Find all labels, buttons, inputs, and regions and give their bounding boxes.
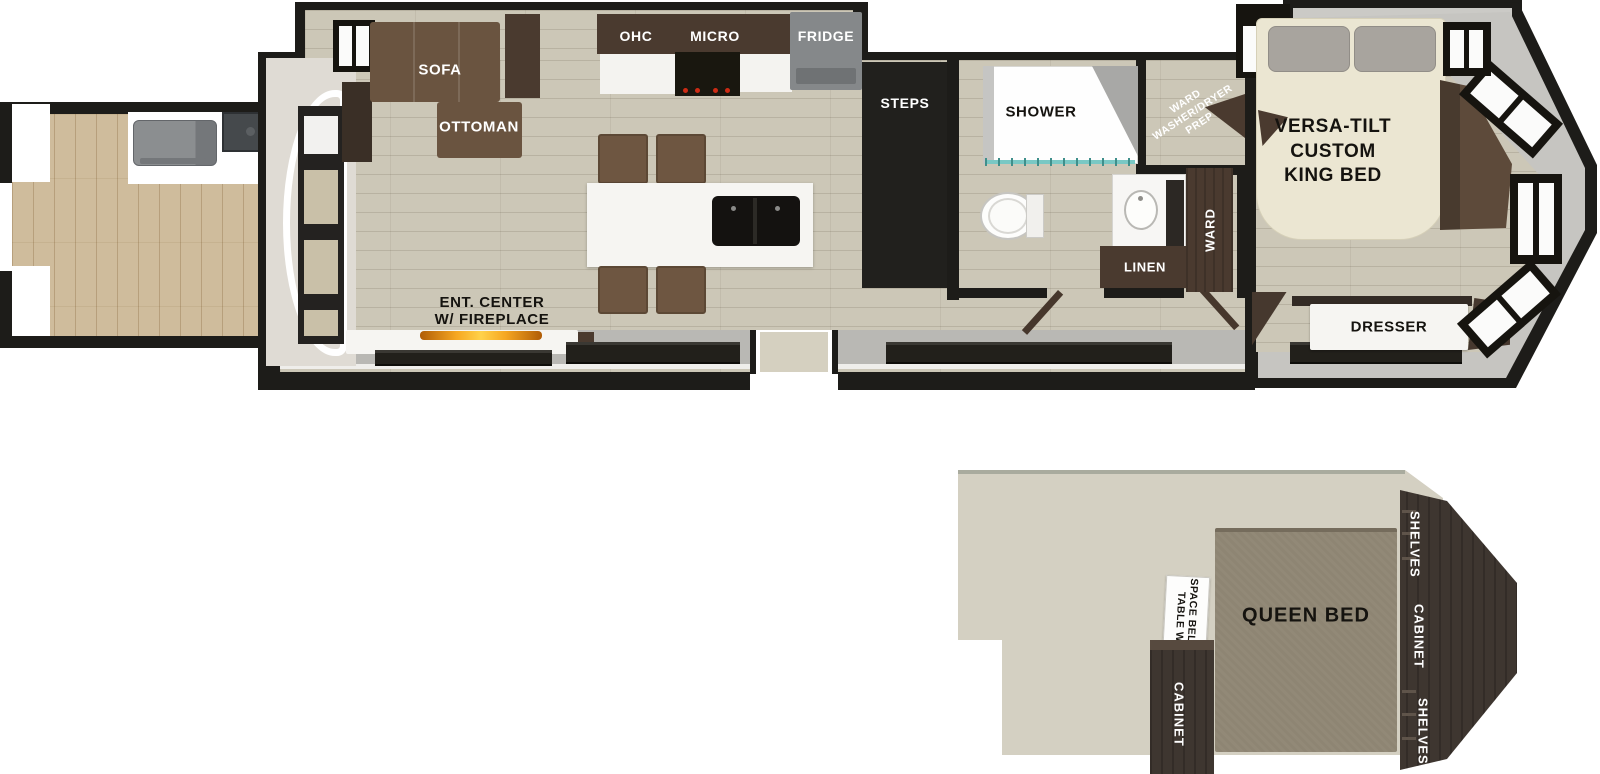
pillow [1354, 26, 1436, 72]
vanity-mirror [1166, 180, 1184, 248]
sofa-slide-window [333, 20, 375, 72]
dining-chair [598, 266, 648, 314]
fireplace-flame-icon [420, 331, 542, 340]
wall [959, 288, 1047, 298]
linen-label: LINEN [1124, 260, 1166, 275]
pantry-cabinet [505, 14, 540, 98]
kitchen-counter-right [740, 54, 792, 92]
sofa-end-table [342, 82, 372, 162]
floorplan-canvas: SOFA OTTOMAN OHC MICRO FRIDGE STEPS SHOW… [0, 0, 1600, 774]
patio-door [298, 106, 344, 344]
fridge-lip [796, 68, 856, 84]
cap-window-middle [1510, 174, 1562, 264]
wall [1104, 288, 1176, 298]
dining-chair [656, 266, 706, 314]
king-bed-label: VERSA-TILT CUSTOM KING BED [1275, 115, 1391, 189]
deck-rail-gap-bottom [12, 266, 50, 336]
micro-label: MICRO [690, 28, 740, 44]
window [566, 342, 740, 364]
shower-glass-ticks [985, 158, 1135, 166]
dining-chair [656, 134, 706, 184]
outdoor-sink-drain [246, 127, 255, 136]
sofa-label: SOFA [418, 62, 461, 79]
shower-wall-left [983, 66, 994, 164]
ottoman-label: OTTOMAN [439, 119, 519, 136]
steps-label: STEPS [881, 95, 930, 111]
queen-bed-label: QUEEN BED [1242, 605, 1370, 628]
toilet-tank [1026, 194, 1044, 238]
entry-door-floor [760, 332, 828, 372]
queen-bed [1215, 528, 1397, 752]
range [675, 52, 740, 96]
entry-door-jamb [832, 330, 838, 374]
kitchen-counter-left [600, 54, 675, 94]
deck-rail-gap-left [0, 183, 12, 271]
entry-door-jamb [750, 330, 756, 374]
bed-slideout-window [1443, 22, 1491, 76]
island-sink [712, 196, 800, 246]
loft-cabinet-right-label: CABINET [1408, 592, 1430, 680]
loft-shelves-top-label: SHELVES [1404, 500, 1426, 588]
dresser-label: DRESSER [1351, 319, 1428, 336]
vanity-faucet [1138, 196, 1143, 201]
pillow [1268, 26, 1350, 72]
grill-lip [140, 158, 206, 164]
window [886, 342, 1172, 364]
wall [947, 60, 959, 300]
deck-rail-gap-top [12, 104, 50, 182]
ent-center-label: ENT. CENTER W/ FIREPLACE [435, 294, 550, 329]
loft-shelves-bottom-label: SHELVES [1412, 686, 1434, 774]
dining-chair [598, 134, 648, 184]
window [375, 350, 552, 366]
toilet-seat [988, 198, 1028, 234]
loft-cabinet-left-label: CABINET [1168, 662, 1190, 766]
shower-label: SHOWER [1005, 104, 1076, 121]
ohc-label: OHC [620, 28, 653, 44]
ward-label: WARD [1203, 208, 1218, 252]
fridge-label: FRIDGE [798, 28, 855, 44]
wall [1237, 165, 1249, 298]
outdoor-sink [222, 112, 262, 152]
